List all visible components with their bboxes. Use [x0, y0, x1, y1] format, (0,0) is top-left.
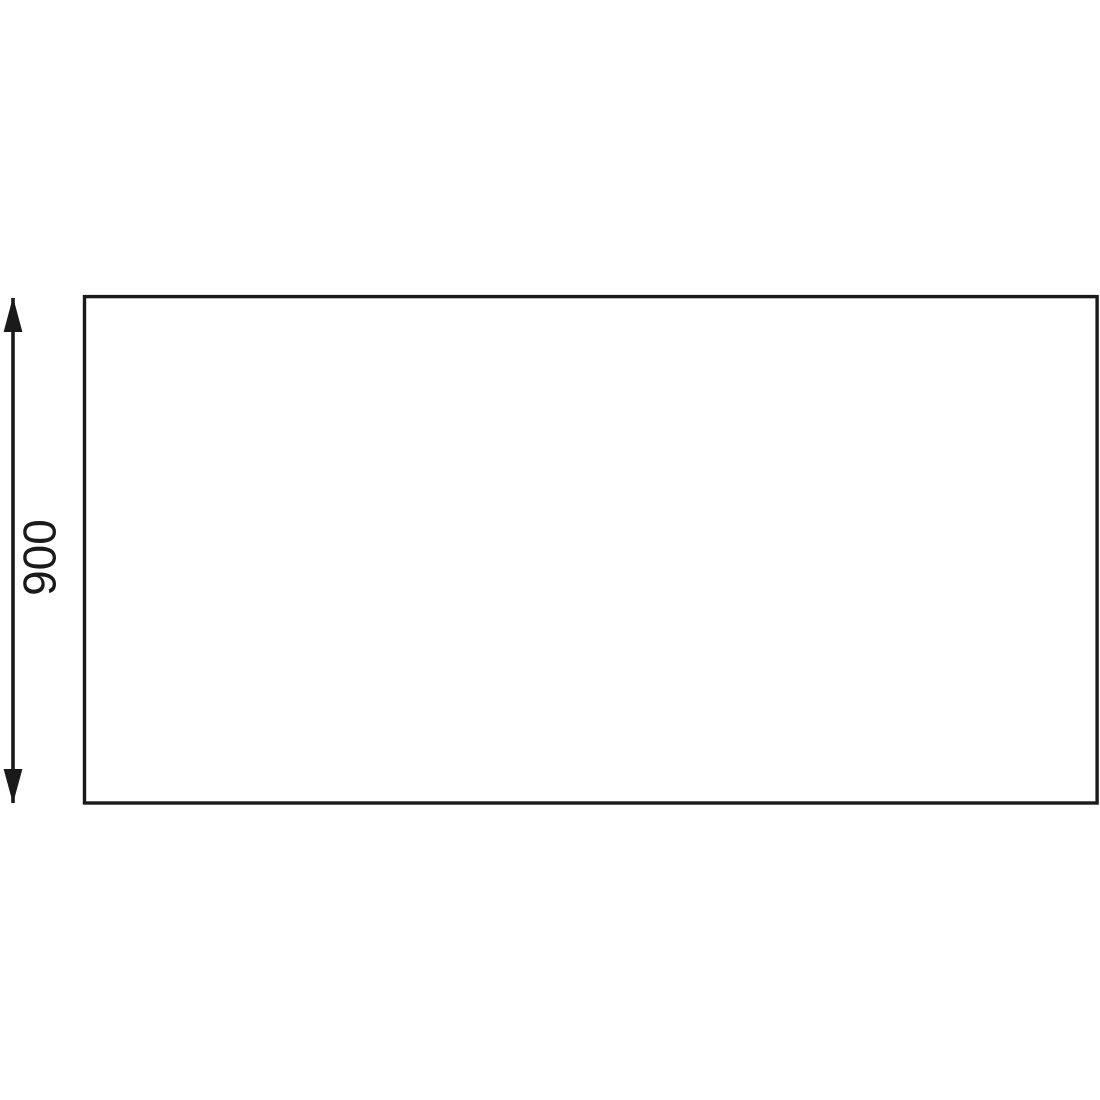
svg-text:900: 900 — [14, 519, 66, 596]
